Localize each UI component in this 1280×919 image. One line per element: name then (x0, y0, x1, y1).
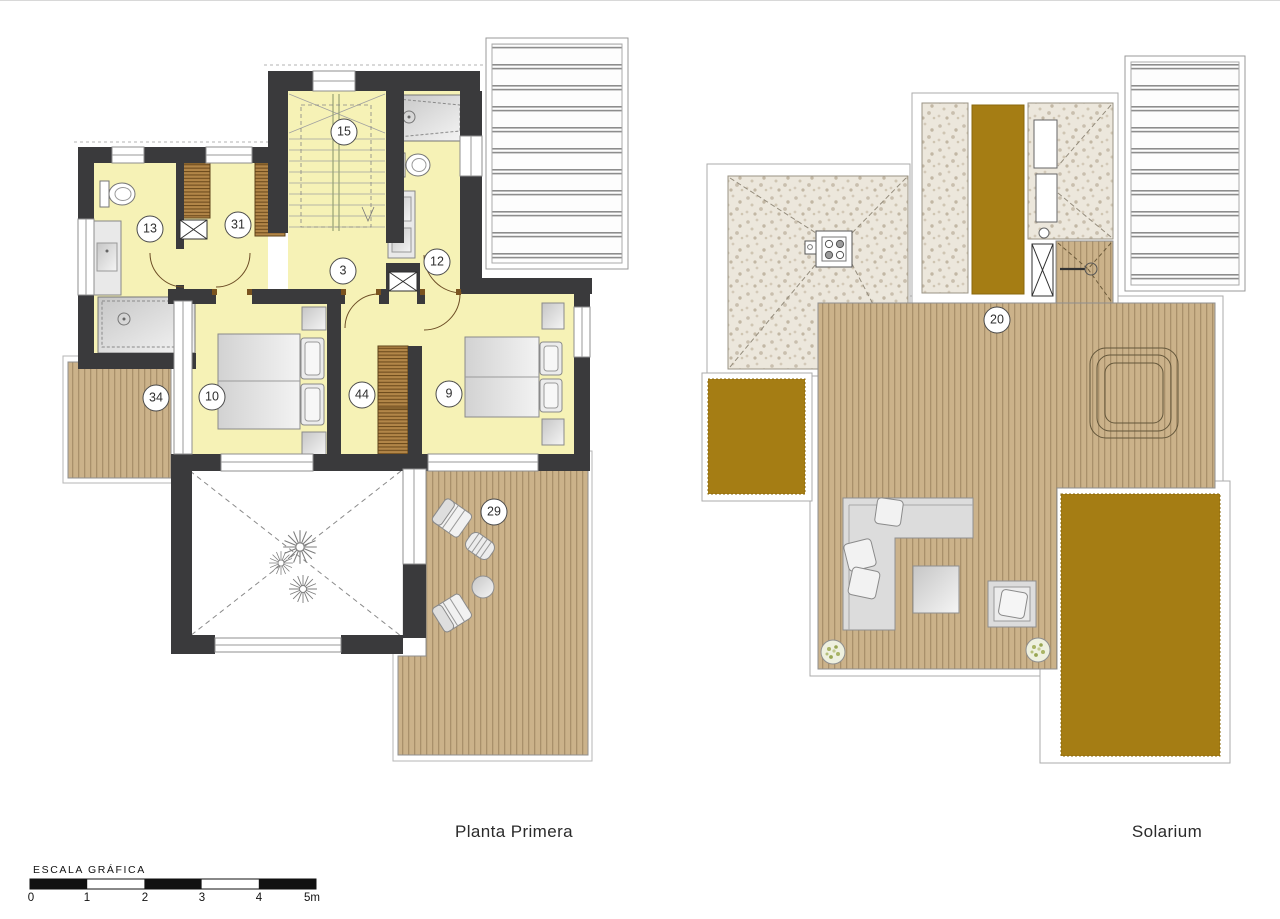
scale-tick-5m: 5m (304, 892, 320, 904)
scale-bar-title: ESCALA GRÁFICA (33, 864, 146, 876)
pillow-icon (874, 497, 903, 526)
shaft-icon (389, 272, 417, 291)
scale-tick-1: 1 (84, 892, 90, 904)
plant-icon (269, 551, 293, 575)
plan-label-solarium: Solarium (1132, 822, 1202, 842)
room-badge-3: 3 (330, 258, 357, 285)
nightstand-icon (542, 303, 564, 329)
nightstand-icon (302, 432, 326, 455)
pillow-icon (847, 566, 880, 599)
room-badge-15: 15 (331, 119, 358, 146)
room-badge-9: 9 (436, 381, 463, 408)
ochre-roof-strip (972, 105, 1024, 294)
potted-plant-icon (821, 640, 845, 664)
ochre-roof-right (1061, 494, 1220, 756)
nightstand-icon (302, 307, 326, 330)
skylight-icon (1034, 120, 1057, 168)
nightstand-icon (542, 419, 564, 445)
stair-arrival (1032, 241, 1113, 303)
plant-icon (289, 575, 317, 603)
wardrobe-icon (182, 163, 210, 218)
plan-label-planta-primera: Planta Primera (455, 822, 573, 842)
terrace-34 (63, 356, 182, 483)
room-badge-12: 12 (424, 249, 451, 276)
plant-icon (283, 530, 317, 564)
scale-tick-4: 4 (256, 892, 262, 904)
round-side-table (472, 576, 494, 598)
shaft-icon (1032, 244, 1053, 296)
skylight-icon (1036, 174, 1057, 222)
pillow-icon (843, 538, 877, 572)
gravel-strip (922, 103, 968, 293)
armchair-icon (988, 581, 1036, 627)
scale-tick-0: 0 (28, 892, 34, 904)
room-badge-10: 10 (199, 384, 226, 411)
floorplan-drawing (0, 1, 1280, 919)
pergola-left-plan (486, 38, 628, 269)
gravel-skylight-block (1028, 103, 1113, 239)
room-badge-34: 34 (143, 385, 170, 412)
room-badge-31: 31 (225, 212, 252, 239)
room-badge-13: 13 (137, 216, 164, 243)
room-badge-20: 20 (984, 307, 1011, 334)
coffee-table-icon (913, 566, 959, 613)
shaft-icon (180, 220, 207, 239)
room-badge-44: 44 (349, 382, 376, 409)
toilet-icon (100, 181, 109, 207)
potted-plant-icon (1026, 638, 1050, 662)
ochre-roof-left (708, 379, 805, 494)
patio-void (188, 469, 403, 638)
scale-bar (30, 879, 316, 889)
solarium-plan (702, 56, 1245, 763)
room-badge-29: 29 (481, 499, 508, 526)
scale-tick-2: 2 (142, 892, 148, 904)
scale-tick-3: 3 (199, 892, 205, 904)
pergola-solarium (1125, 56, 1245, 291)
floorplan-sheet: 15 13 31 3 12 34 10 44 9 29 20 Planta Pr… (0, 0, 1280, 919)
shower-icon (394, 95, 464, 141)
wardrobe-icon (378, 346, 408, 408)
